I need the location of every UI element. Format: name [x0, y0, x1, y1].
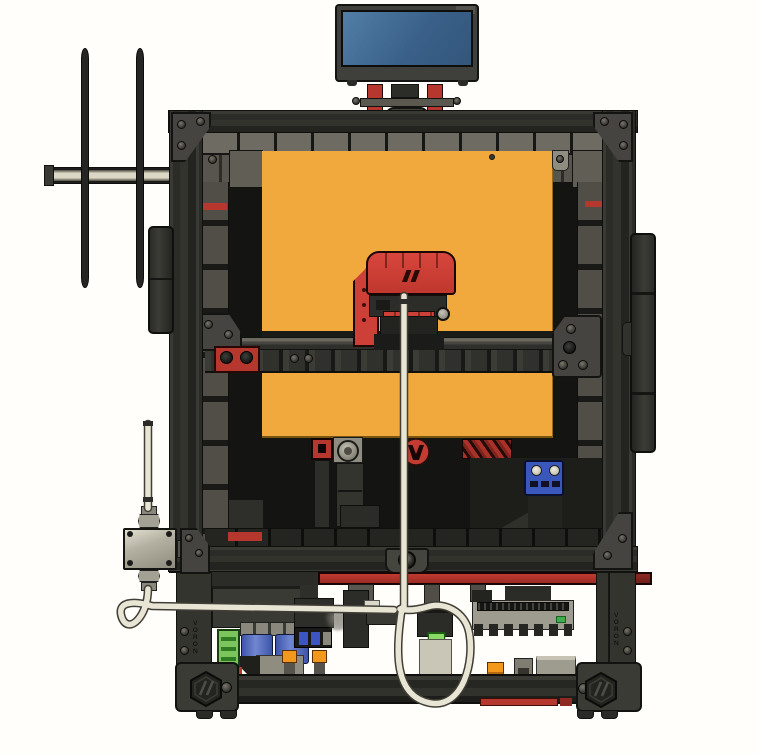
terminal-slot-3	[221, 657, 236, 661]
orange-connector-1-leg	[284, 663, 295, 674]
voron-left-rail-text: VORON	[191, 620, 198, 660]
base-right-screw-2	[623, 646, 632, 655]
right-handle-clip	[622, 322, 632, 356]
build-plate-screw-dot	[489, 154, 495, 160]
cutter-tower-base	[419, 639, 452, 677]
left-door-handle	[148, 226, 174, 334]
side-plate-dot-3	[362, 318, 366, 322]
cb-tr-screw-1	[619, 120, 628, 129]
board-gray-slot	[323, 632, 331, 645]
display-foot-right	[458, 80, 468, 86]
top-panel-screw-left	[208, 155, 217, 164]
left-column-panel	[229, 150, 263, 188]
spool-core	[89, 112, 136, 233]
printer-render: VORON VORON	[0, 0, 760, 754]
display-mount-block	[391, 84, 419, 98]
cb-br-screw-2	[603, 551, 612, 560]
toolhead-knob	[436, 307, 450, 321]
power-slot-1	[530, 481, 538, 487]
base-right-screw-1	[623, 627, 632, 636]
base-left-rail-line	[204, 572, 206, 676]
spool-flange-left	[81, 48, 89, 288]
gantry-right-screw-2	[563, 341, 576, 354]
chain-screw-1	[290, 354, 299, 363]
cb-tr-screw-3	[619, 141, 628, 150]
gantry-left-screw-2	[224, 330, 233, 339]
sensor-screw-bl	[127, 560, 133, 566]
sensor-bracket-screw-1	[185, 534, 193, 542]
controller-pin-row	[477, 602, 569, 611]
xy-joint-bolt-2	[240, 351, 253, 364]
foot-4	[601, 710, 618, 719]
voron-right-rail-text: VORON	[612, 612, 619, 652]
controller-teeth	[474, 624, 572, 636]
sensor-bottom-collar	[138, 570, 160, 582]
display-screen	[341, 10, 473, 67]
skirt-tab-2	[424, 584, 440, 604]
base-right-rail-line	[608, 572, 610, 676]
floor-red-strip	[228, 532, 262, 541]
display-mount-plate	[360, 98, 454, 107]
z-bracket-slot	[318, 444, 326, 453]
cb-tl-screw-3	[177, 141, 186, 150]
display-plate-screw-left	[352, 97, 360, 105]
chamber-center-box	[340, 505, 380, 528]
dark-wedge	[240, 656, 260, 674]
power-terminal-left	[531, 465, 542, 476]
base-left-screw-1	[180, 627, 189, 636]
gantry-left-screw-1	[204, 320, 213, 329]
tower-a-arm	[366, 610, 400, 625]
orange-connector-2	[312, 650, 327, 663]
base-corner-left-screw	[221, 682, 232, 693]
terminal-slot-1	[221, 637, 236, 641]
foot-1	[196, 710, 213, 719]
gantry-cable-chain	[205, 350, 601, 373]
bottom-mount-bolt	[398, 551, 416, 569]
board-blue-slot-2	[311, 632, 320, 645]
sensor-bracket-screw-2	[195, 549, 203, 557]
sensor-top-collar	[138, 514, 160, 528]
gantry-right-screw-3	[558, 360, 568, 370]
bed-corner-screw	[556, 155, 564, 163]
spool-rod-endcap	[44, 165, 54, 186]
right-handle-line-1	[632, 292, 654, 295]
z-column	[314, 460, 330, 528]
terminal-slot-2	[221, 647, 236, 651]
frame-top-rail	[168, 110, 638, 133]
cb-tr-screw-2	[600, 117, 609, 126]
controller-left-connector	[472, 590, 492, 602]
left-column-red-marker	[203, 203, 227, 210]
toolhead-body-slot	[376, 300, 390, 310]
side-plate-dot-2	[362, 303, 366, 307]
foot-2	[220, 710, 237, 719]
heatbed-wiring-block	[462, 439, 512, 459]
chain-screw-2	[304, 354, 313, 363]
skirt-dark-strip-left	[203, 572, 318, 586]
sensor-screw-tr	[166, 531, 172, 537]
controller-top-connector	[505, 586, 551, 601]
right-handle-line-2	[632, 392, 654, 395]
sensor-screw-br	[166, 560, 172, 566]
base-red-accent-2	[560, 698, 572, 706]
display-foot-left	[347, 80, 357, 86]
xy-joint-bolt-1	[220, 351, 233, 364]
sensor-screw-tl	[127, 531, 133, 537]
board-blue-slot-1	[299, 632, 308, 645]
frame-left-rail	[169, 110, 203, 573]
base-left-screw-2	[180, 646, 189, 655]
controller-led-green	[556, 616, 566, 623]
base-red-accent	[480, 698, 558, 706]
toolhead-base	[374, 334, 444, 350]
cb-tl-screw-2	[196, 117, 205, 126]
foot-3	[577, 710, 594, 719]
orange-connector-1	[282, 650, 297, 663]
cb-br-screw-1	[618, 534, 627, 543]
base-corner-right-screw	[578, 683, 589, 694]
orange-connector-2-leg	[314, 663, 325, 674]
cb-tl-screw-1	[177, 120, 186, 129]
power-slot-3	[552, 481, 560, 487]
right-column-red-marker	[585, 201, 603, 207]
power-slot-2	[541, 481, 549, 487]
left-handle-line	[150, 278, 172, 280]
spool-flange-right	[136, 48, 144, 288]
gantry-right-screw-4	[578, 360, 588, 370]
gantry-right-screw-1	[566, 324, 576, 334]
power-terminal-right	[549, 465, 560, 476]
z-motor-box-line	[338, 490, 362, 492]
toolhead-cap-ribs	[370, 253, 452, 268]
z-motor-hub	[344, 447, 352, 455]
display-plate-screw-right	[453, 97, 461, 105]
sensor-bottom-nut	[141, 582, 157, 591]
tower-a-cap	[364, 600, 380, 610]
chamber-floor-band	[205, 528, 603, 546]
right-door-handle	[630, 233, 656, 453]
